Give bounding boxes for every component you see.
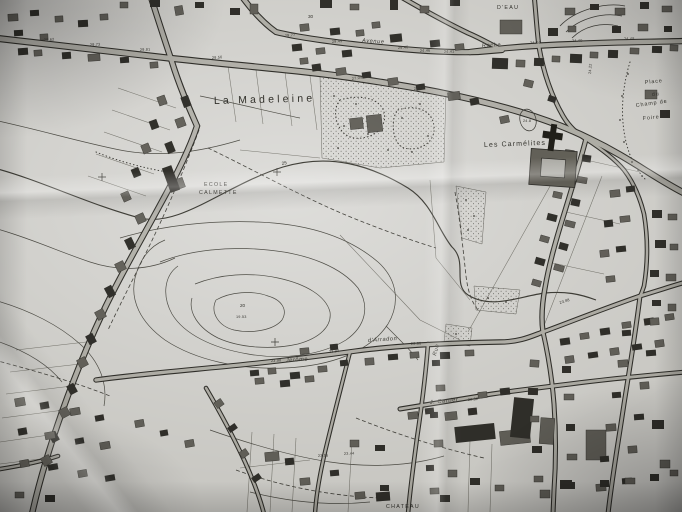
label-place-line3: Champ de bbox=[635, 99, 668, 109]
contour-label-20: 20 bbox=[240, 303, 246, 308]
elevation-label: 24.22 bbox=[588, 63, 593, 74]
elevation-label: 24.40 bbox=[572, 39, 583, 43]
label-d-eau: D'EAU bbox=[497, 5, 519, 11]
label-la-madeleine: La Madeleine bbox=[214, 92, 316, 107]
elevation-label: 23.98 bbox=[271, 358, 282, 363]
contour-label-25: 25 bbox=[281, 160, 287, 166]
elevation-label: 23.44 bbox=[344, 451, 355, 456]
spot-height-label: 19.53 bbox=[236, 315, 247, 319]
elevation-label: 29.81 bbox=[140, 47, 151, 52]
elevation-label: 29.62 bbox=[44, 37, 55, 42]
elevation-label: 24.41 bbox=[444, 49, 455, 54]
map-photo: La Madeleine Les Carmélites ECOLE CALMET… bbox=[0, 0, 682, 512]
label-street-arradon: d'Arradon bbox=[368, 336, 398, 344]
elevation-label: 29.73 bbox=[90, 42, 101, 47]
elevation-label: 23.56 bbox=[318, 453, 329, 458]
map-linework-layer bbox=[0, 0, 682, 512]
elevation-label: 24.8 bbox=[523, 119, 531, 123]
label-ecole-line2: CALMETTE bbox=[199, 190, 238, 196]
roads-layer bbox=[0, 0, 682, 512]
elevation-label: 23.90 bbox=[411, 341, 422, 346]
elevation-label: 29.56 bbox=[212, 55, 223, 60]
label-street-roche: Roche bbox=[482, 42, 501, 49]
elevation-label: 30 bbox=[308, 14, 314, 19]
label-place-line4: Foire bbox=[643, 114, 660, 122]
label-place-line2: du bbox=[652, 91, 660, 98]
label-ecole-line1: ECOLE bbox=[204, 182, 228, 188]
elevation-label: 24.48 bbox=[624, 37, 635, 41]
elevation-label: 23.88 bbox=[559, 298, 570, 305]
elevation-label: 29.46 bbox=[398, 45, 409, 50]
label-chateau: CHATEAU bbox=[386, 504, 420, 510]
cadastral-map-drawing: La Madeleine Les Carmélites ECOLE CALMET… bbox=[0, 0, 682, 512]
vegetation-stipple-layer bbox=[320, 76, 520, 346]
elevation-label: 24.44 bbox=[530, 41, 541, 45]
dashed-paths-layer bbox=[0, 130, 484, 498]
label-place-line1: Place bbox=[645, 78, 664, 86]
label-street-jerome: Jerôme bbox=[285, 356, 309, 364]
elevation-label: 24.46 bbox=[420, 48, 431, 53]
elevation-label: 23.52 bbox=[468, 397, 479, 402]
label-les-carmelites: Les Carmélites bbox=[484, 140, 546, 149]
label-street-cartier: J. Cartier bbox=[429, 397, 460, 406]
